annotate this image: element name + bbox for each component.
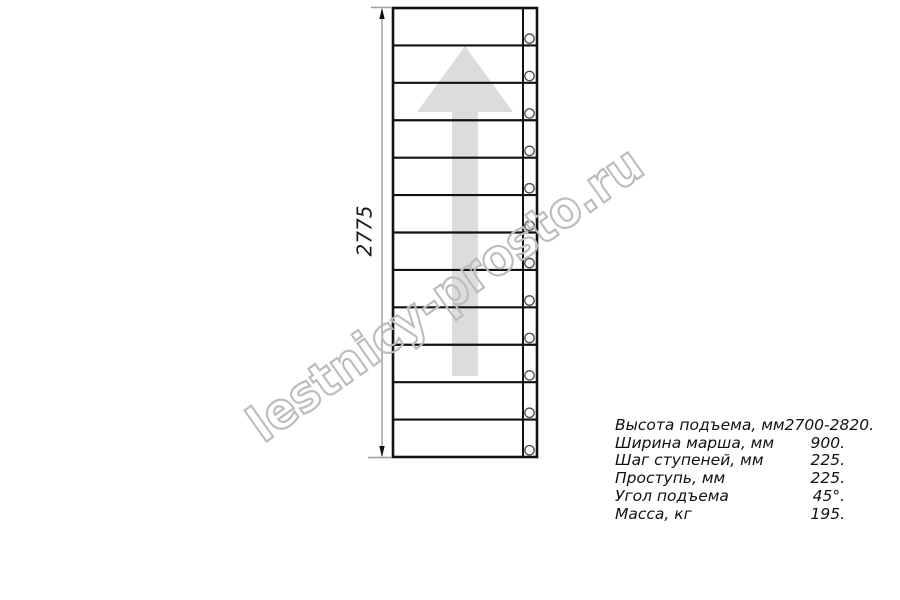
spec-value: 900. <box>810 435 845 453</box>
spec-row-mass: Масса, кг 195. <box>615 506 845 524</box>
baluster-holes <box>525 34 534 455</box>
baluster-hole <box>525 71 534 80</box>
spec-label: Ширина марша, мм <box>615 435 774 453</box>
dimension-label: 2775 <box>353 206 377 257</box>
baluster-hole <box>525 446 534 455</box>
dimension-arrowhead-bottom <box>379 446 384 457</box>
spec-label: Высота подъема, мм <box>615 417 785 435</box>
spec-value: 195. <box>810 506 845 524</box>
spec-label: Проступь, мм <box>615 470 725 488</box>
spec-row-height: Высота подъема, мм 2700-2820. <box>615 417 845 435</box>
baluster-hole <box>525 371 534 380</box>
spec-row-flight-width: Ширина марша, мм 900. <box>615 435 845 453</box>
spec-row-step-pitch: Шаг ступеней, мм 225. <box>615 452 845 470</box>
spec-value: 45°. <box>813 488 845 506</box>
spec-value: 225. <box>810 470 845 488</box>
spec-row-tread: Проступь, мм 225. <box>615 470 845 488</box>
baluster-hole <box>525 109 534 118</box>
baluster-hole <box>525 184 534 193</box>
spec-value: 225. <box>810 452 845 470</box>
spec-value: 2700-2820. <box>785 417 874 435</box>
baluster-hole <box>525 296 534 305</box>
spec-table: Высота подъема, мм 2700-2820. Ширина мар… <box>615 417 845 523</box>
spec-label: Масса, кг <box>615 506 692 524</box>
baluster-hole <box>525 221 534 230</box>
baluster-hole <box>525 146 534 155</box>
baluster-hole <box>525 408 534 417</box>
baluster-hole <box>525 333 534 342</box>
spec-label: Шаг ступеней, мм <box>615 452 764 470</box>
spec-row-angle: Угол подъема 45°. <box>615 488 845 506</box>
dimension-2775: 2775 <box>353 8 393 458</box>
spec-label: Угол подъема <box>615 488 729 506</box>
direction-up-arrow <box>417 46 513 376</box>
dimension-arrowhead-top <box>379 8 384 19</box>
baluster-hole <box>525 258 534 267</box>
page-canvas: 2775 lestnicy-prosto.ru Высота подъема, … <box>0 0 900 600</box>
baluster-hole <box>525 34 534 43</box>
